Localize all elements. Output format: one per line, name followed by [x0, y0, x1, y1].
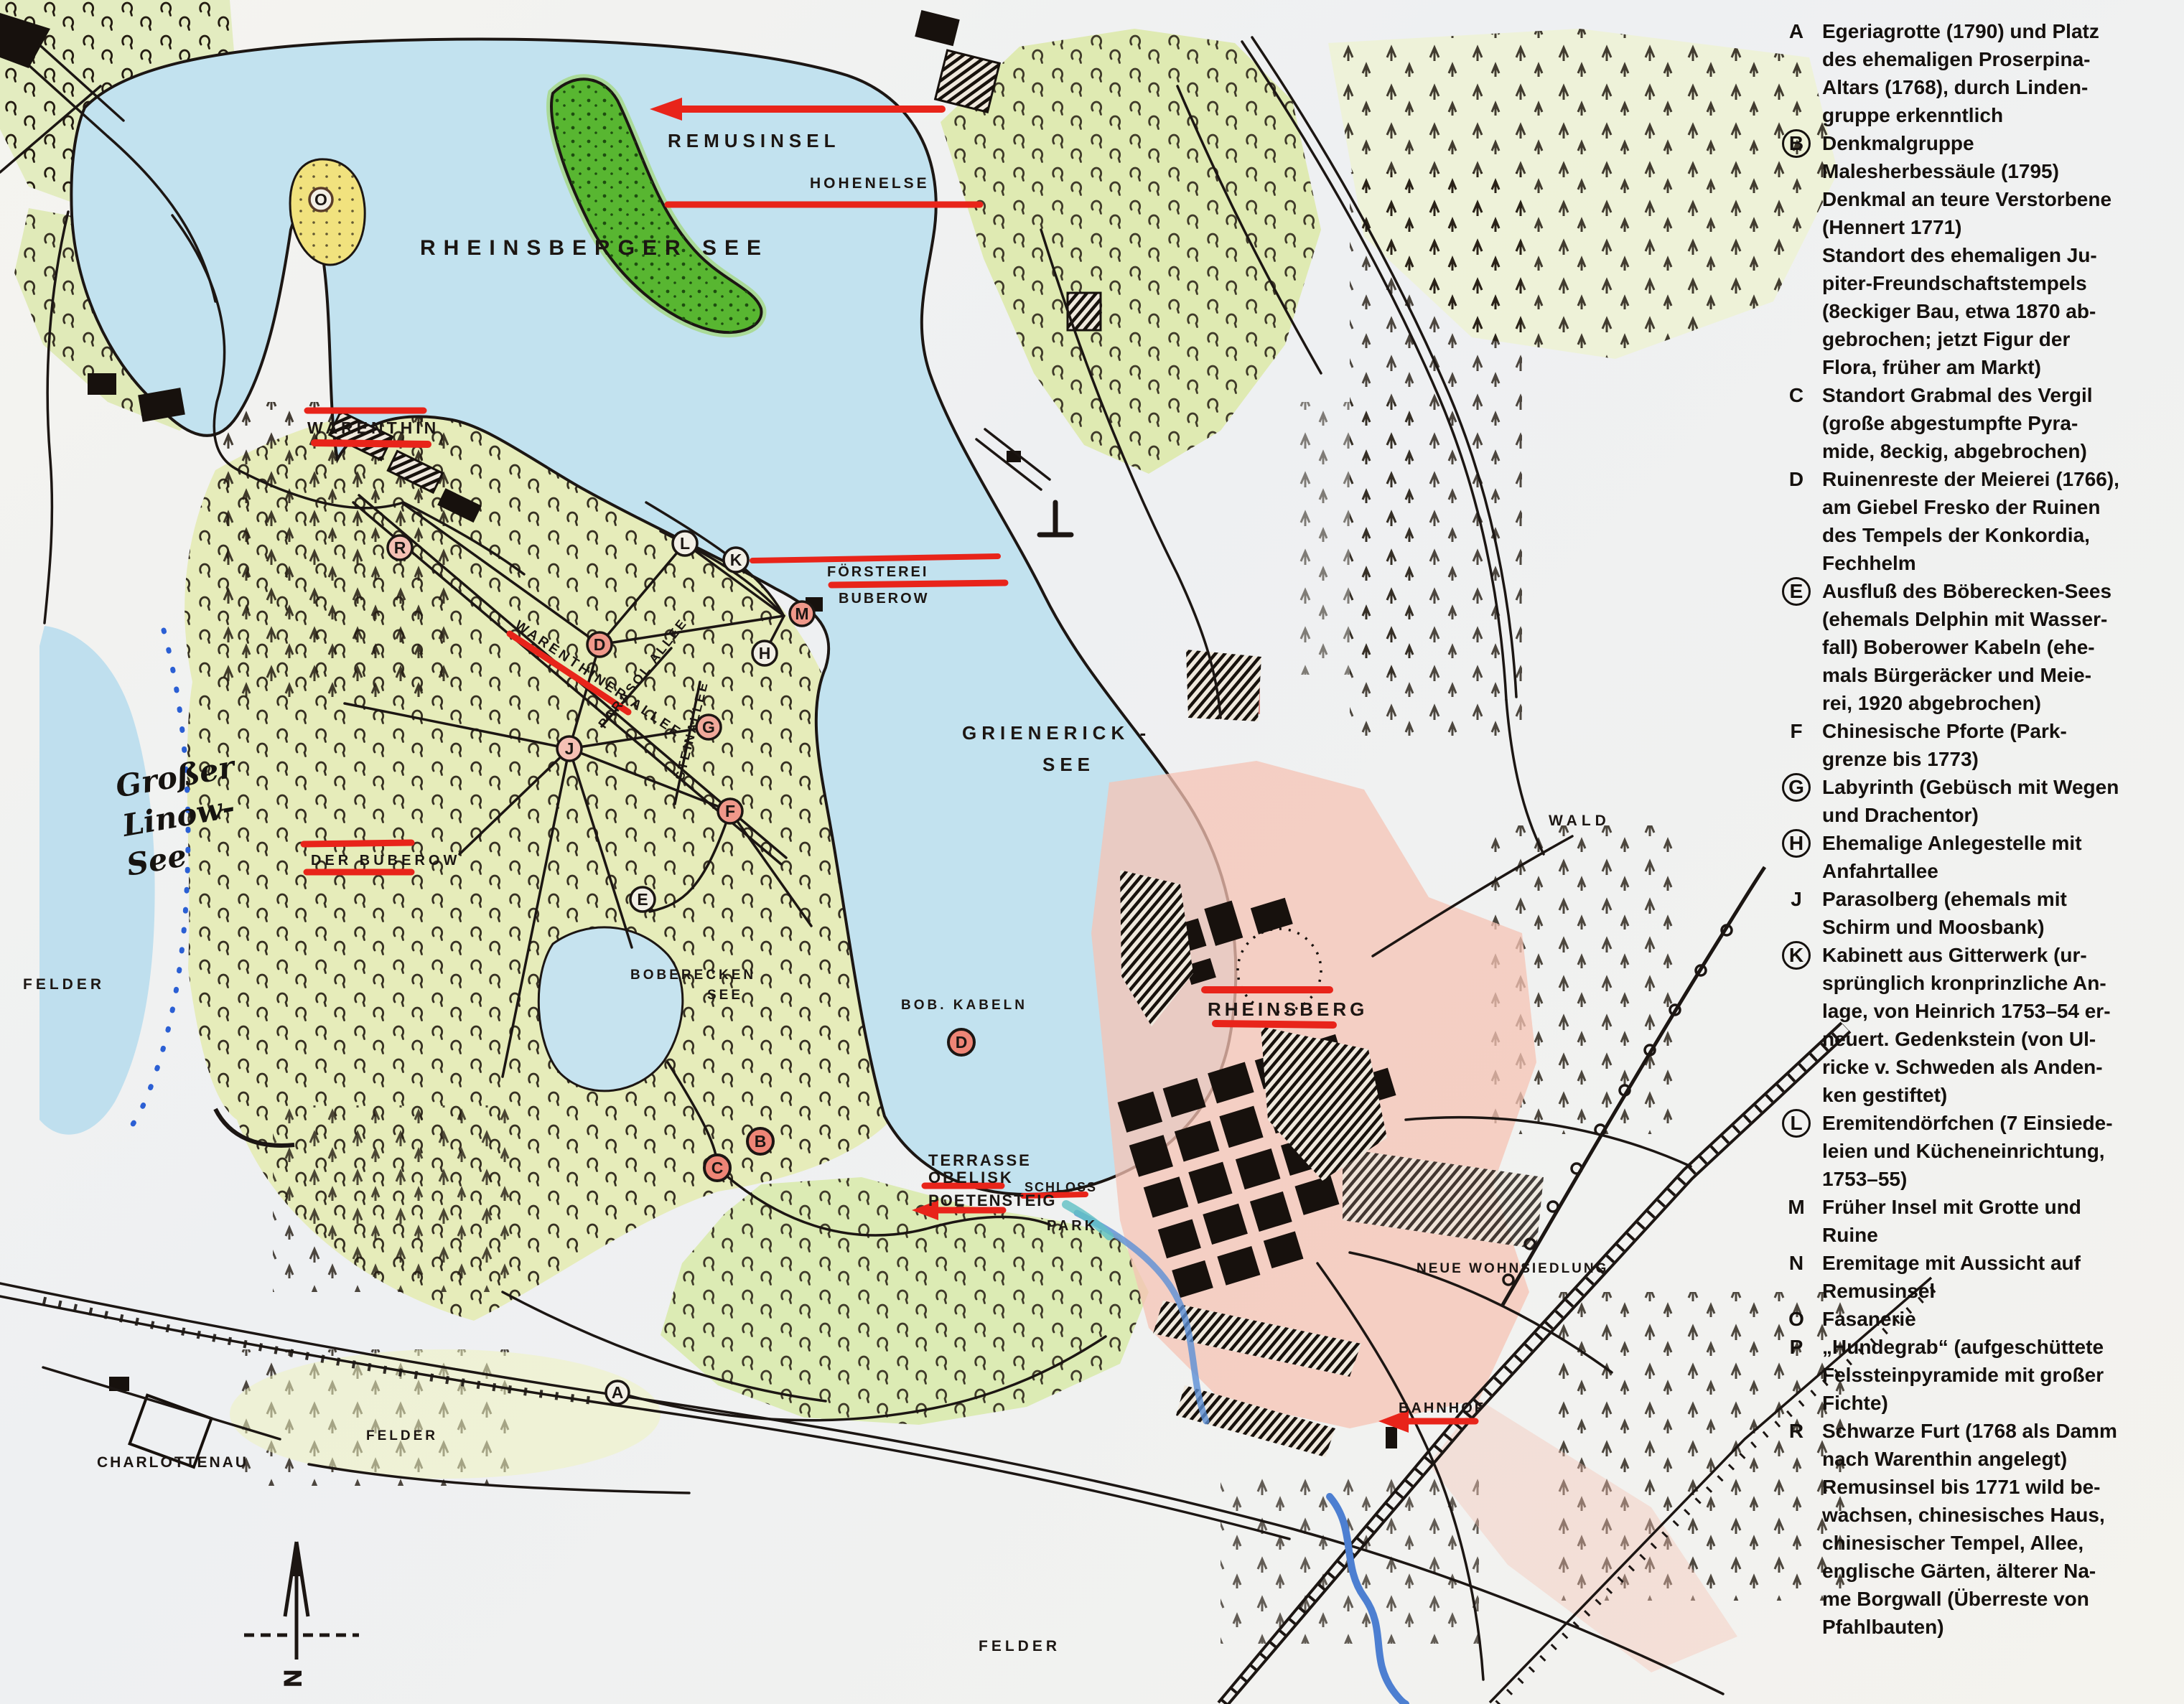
legend-item-r: R Schwarze Furt (1768 als Damm nach Ware…	[1782, 1417, 2184, 1641]
legend-letter-h: H	[1782, 829, 1811, 858]
legend-letter-n: N	[1782, 1249, 1811, 1277]
marker-letter: O	[314, 190, 327, 209]
marker-letter: B	[755, 1132, 767, 1151]
legend-letter-r: R	[1782, 1417, 1811, 1445]
legend-text-g: Labyrinth (Gebüsch mit Wegen und Drachen…	[1822, 773, 2184, 829]
legend-letter-c: C	[1782, 381, 1811, 409]
marker-letter: C	[711, 1158, 724, 1177]
label-schloss: SCHLOSS	[1025, 1180, 1097, 1194]
marker-letter: L	[680, 534, 690, 553]
label-boberecken-1: BOBERECKEN	[630, 968, 756, 983]
legend-text-o: Fasanerie	[1822, 1305, 2184, 1333]
label-remusinsel: REMUSINSEL	[668, 130, 840, 151]
marker-m: M	[790, 601, 814, 626]
legend-text-n: Eremitage mit Aussicht auf Remusinsel	[1822, 1249, 2184, 1305]
scanned-park-map: O R L K D M H G J F E D B C A N REMUSINS…	[0, 0, 2184, 1704]
label-foersterei-2: BUBEROW	[839, 591, 930, 607]
legend-text-h: Ehemalige Anlegestelle mit Anfahrtallee	[1822, 829, 2184, 885]
legend-text-e: Ausfluß des Böberecken-Sees (ehemals Del…	[1822, 577, 2184, 717]
marker-letter: R	[394, 538, 406, 557]
north-arrow: N	[244, 1542, 359, 1687]
legend-item-o: O Fasanerie	[1782, 1305, 2184, 1333]
sand-cape	[290, 159, 365, 265]
marker-h: H	[752, 641, 777, 665]
marker-letter: D	[956, 1033, 968, 1052]
legend-item-b: B Denkmalgruppe Malesherbessäule (1795) …	[1782, 129, 2184, 381]
label-terrasse: TERRASSE	[928, 1151, 1032, 1169]
label-felder-southwest: FELDER	[366, 1428, 438, 1443]
label-der-buberow: DER BUBEROW	[311, 853, 460, 869]
legend-text-d: Ruinenreste der Meierei (1766), am Giebe…	[1822, 465, 2184, 577]
legend-item-e: E Ausfluß des Böberecken-Sees (ehemals D…	[1782, 577, 2184, 717]
legend-letter-l: L	[1782, 1109, 1811, 1138]
label-bahnhof: BAHNHOF	[1399, 1400, 1485, 1416]
label-rheinsberger-see: RHEINSBERGER SEE	[420, 236, 769, 260]
legend-letter-e: E	[1782, 577, 1811, 606]
label-felder-west: FELDER	[23, 976, 105, 993]
marker-letter: F	[725, 802, 735, 820]
legend-item-k: K Kabinett aus Gitterwerk (ur- sprünglic…	[1782, 941, 2184, 1109]
marker-letter: E	[637, 890, 648, 909]
label-neue-wohnsiedlung: NEUE WOHNSIEDLUNG	[1417, 1261, 1608, 1276]
label-grienerick-1: GRIENERICK -	[962, 722, 1151, 744]
label-bob-kabeln: BOB. KABELN	[901, 998, 1027, 1013]
legend-text-a: Egeriagrotte (1790) und Platz des ehemal…	[1822, 17, 2184, 129]
legend-item-p: P „Hundegrab“ (aufgeschüttete Felssteinp…	[1782, 1333, 2184, 1417]
marker-r: R	[388, 535, 412, 560]
legend-item-f: F Chinesische Pforte (Park- grenze bis 1…	[1782, 717, 2184, 773]
legend-text-r: Schwarze Furt (1768 als Damm nach Warent…	[1822, 1417, 2184, 1641]
label-hohenelse: HOHENELSE	[810, 175, 930, 192]
legend-item-n: N Eremitage mit Aussicht auf Remusinsel	[1782, 1249, 2184, 1305]
legend-text-c: Standort Grabmal des Vergil (große abges…	[1822, 381, 2184, 465]
marker-letter: A	[612, 1383, 624, 1402]
marker-f: F	[718, 799, 742, 823]
legend-letter-d: D	[1782, 465, 1811, 493]
legend-letter-a: A	[1782, 17, 1811, 45]
marker-o: O	[309, 188, 332, 211]
marker-letter: D	[594, 635, 606, 654]
legend-item-g: G Labyrinth (Gebüsch mit Wegen und Drach…	[1782, 773, 2184, 829]
marker-letter: K	[730, 551, 742, 569]
marker-k: K	[724, 548, 748, 572]
legend-item-h: H Ehemalige Anlegestelle mit Anfahrtalle…	[1782, 829, 2184, 885]
legend-letter-m: M	[1782, 1193, 1811, 1221]
marker-d-forest: D	[587, 632, 612, 657]
legend-text-j: Parasolberg (ehemals mit Schirm und Moos…	[1822, 885, 2184, 941]
label-foersterei-1: FÖRSTEREI	[827, 563, 928, 580]
legend-letter-k: K	[1782, 941, 1811, 970]
legend-item-a: A Egeriagrotte (1790) und Platz des ehem…	[1782, 17, 2184, 129]
label-rheinsberg: RHEINSBERG	[1208, 998, 1368, 1020]
legend-item-c: C Standort Grabmal des Vergil (große abg…	[1782, 381, 2184, 465]
marker-d-lake: D	[948, 1029, 974, 1055]
legend-letter-p: P	[1782, 1333, 1811, 1361]
legend-letter-g: G	[1782, 773, 1811, 802]
marker-letter: H	[759, 644, 771, 663]
legend-item-d: D Ruinenreste der Meierei (1766), am Gie…	[1782, 465, 2184, 577]
legend-item-m: M Früher Insel mit Grotte und Ruine	[1782, 1193, 2184, 1249]
marker-letter: G	[702, 718, 715, 736]
legend-text-p: „Hundegrab“ (aufgeschüttete Felssteinpyr…	[1822, 1333, 2184, 1417]
marker-letter: M	[795, 604, 808, 623]
legend-text-k: Kabinett aus Gitterwerk (ur- sprünglich …	[1822, 941, 2184, 1109]
north-letter: N	[279, 1670, 306, 1687]
legend-text-l: Eremitendörfchen (7 Einsiede- leien und …	[1822, 1109, 2184, 1193]
label-obelisk: OBELISK	[928, 1169, 1014, 1186]
legend-letter-f: F	[1782, 717, 1811, 745]
legend-item-l: L Eremitendörfchen (7 Einsiede- leien un…	[1782, 1109, 2184, 1193]
legend-text-f: Chinesische Pforte (Park- grenze bis 177…	[1822, 717, 2184, 773]
legend-item-j: J Parasolberg (ehemals mit Schirm und Mo…	[1782, 885, 2184, 941]
marker-j: J	[557, 736, 582, 761]
legend: A Egeriagrotte (1790) und Platz des ehem…	[1782, 17, 2184, 1641]
marker-letter: J	[565, 739, 574, 758]
legend-letter-b: B	[1782, 129, 1811, 158]
label-warenthin: WARENTHIN	[307, 418, 439, 437]
label-charlottenau: CHARLOTTENAU	[97, 1454, 248, 1471]
legend-letter-o: O	[1782, 1305, 1811, 1333]
legend-letter-j: J	[1782, 885, 1811, 913]
marker-b: B	[747, 1128, 773, 1154]
marker-l: L	[673, 531, 697, 556]
marker-c: C	[704, 1155, 730, 1181]
label-park: PARK	[1047, 1218, 1098, 1234]
legend-text-m: Früher Insel mit Grotte und Ruine	[1822, 1193, 2184, 1249]
label-grienerick-2: SEE	[1042, 754, 1095, 775]
label-boberecken-2: SEE	[707, 988, 743, 1003]
marker-a: A	[606, 1381, 629, 1404]
marker-e: E	[630, 887, 655, 912]
label-felder-south: FELDER	[979, 1638, 1060, 1654]
label-wald: WALD	[1549, 813, 1610, 829]
legend-text-b: Denkmalgruppe Malesherbessäule (1795) De…	[1822, 129, 2184, 381]
